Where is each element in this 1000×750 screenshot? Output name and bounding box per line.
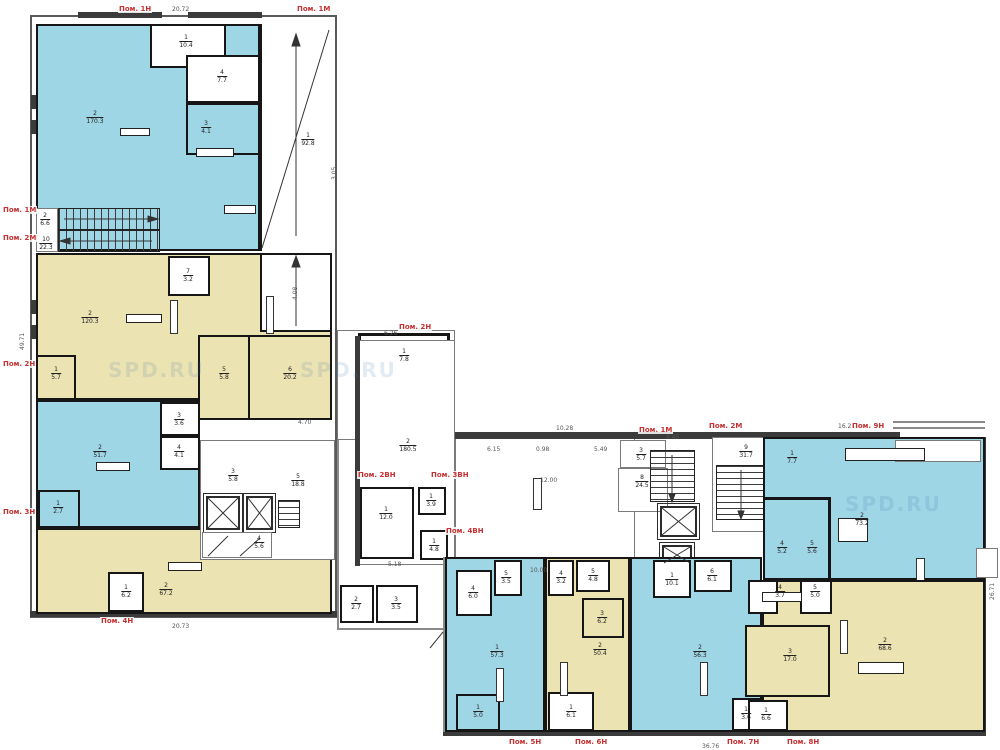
premise-label: Пом. 3Н [2, 508, 36, 516]
dimension-label: 20.72 [172, 7, 189, 13]
vent-slot [170, 300, 178, 334]
wall-line [337, 440, 339, 630]
room-label: 44.1 [174, 445, 184, 459]
watermark: SPD.RU [300, 358, 397, 382]
room-label: 22.7 [351, 597, 361, 611]
vent-slot [560, 662, 568, 696]
wall-niche [976, 548, 998, 578]
dimension-label: 5.49 [594, 447, 607, 453]
premise-label: Пом. 2М [2, 234, 37, 242]
room-label: 14.8 [429, 539, 439, 553]
premise-label: Пом. 1М [296, 5, 331, 13]
room-label: 157.3 [490, 645, 503, 659]
dimension-label: 36.76 [702, 744, 719, 750]
premise-label: Пом. 2Н [398, 323, 432, 331]
parapet-line [893, 421, 985, 423]
dimension-label: 5.18 [388, 562, 401, 568]
room-label: 16.1 [566, 705, 576, 719]
room-label: 112.0 [379, 507, 392, 521]
dimension-label: 6.15 [487, 447, 500, 453]
fixture-shelf [224, 205, 256, 214]
wall-line [337, 628, 443, 630]
room-label: 16.2 [121, 585, 131, 599]
dimension-label: 3.05 [332, 167, 338, 180]
fixture-shelf [96, 462, 130, 471]
premise-label: Пом. 1М [638, 426, 673, 434]
fixture-shelf [120, 128, 150, 136]
room-label: 13.6 [741, 707, 751, 721]
room-label: 33.6 [174, 413, 184, 427]
dimension-label: 49.71 [20, 333, 26, 350]
premise-label: Пом. 9Н [851, 422, 885, 430]
room-label: 45.2 [777, 541, 787, 555]
room-label: 824.5 [635, 475, 648, 489]
room-label: 35.7 [636, 448, 646, 462]
room-label: 47.7 [217, 70, 227, 84]
stairwell-right-2 [716, 465, 766, 520]
core-stair [278, 500, 300, 528]
premise-label: Пом. 8Н [786, 738, 820, 746]
room-label: 110.1 [665, 573, 678, 587]
fixture-shelf [168, 562, 202, 571]
room-label: 256.3 [693, 645, 706, 659]
room-label: 35.8 [228, 469, 238, 483]
room-label: 317.0 [783, 649, 796, 663]
fixture-counter [858, 662, 904, 674]
room-label: 192.8 [301, 133, 314, 147]
premise-label: Пом. 4ВН [445, 527, 485, 535]
room-label: 250.4 [593, 643, 606, 657]
room-label: 66.1 [707, 569, 717, 583]
elevator-shaft-1 [206, 496, 240, 530]
room-label: 55.6 [807, 541, 817, 555]
room-label: 54.8 [588, 569, 598, 583]
dimension-label: 4.08 [293, 287, 299, 300]
room-label: 12.7 [53, 501, 63, 515]
room-label: 55.8 [219, 367, 229, 381]
hall-main [455, 437, 635, 565]
room-label: 268.6 [878, 638, 891, 652]
dimension-label: 12.00 [540, 478, 557, 484]
watermark: SPD.RU [845, 492, 942, 516]
room-label: 110.4 [179, 35, 192, 49]
stairwell-left-lower [58, 230, 160, 252]
stairwell-right-1 [650, 450, 695, 502]
elevator-shaft-2 [246, 496, 273, 530]
room-label: 2120.3 [81, 311, 98, 325]
fixture-shelf [126, 314, 162, 323]
room-label: 73.2 [183, 269, 193, 283]
premise-label: Пом. 4Н [100, 617, 134, 625]
premise-label: Пом. 3ВН [430, 471, 470, 479]
room-label: 34.1 [201, 121, 211, 135]
premise-label: Пом. 7Н [726, 738, 760, 746]
room-label: 251.7 [93, 445, 106, 459]
room-label: 55.0 [810, 585, 820, 599]
dimension-label: 0.98 [536, 447, 549, 453]
outer-wall-segment [188, 12, 262, 18]
room-label: 518.8 [291, 474, 304, 488]
dimension-label: 9.45 [666, 435, 679, 441]
dimension-label: 4.70 [298, 420, 311, 426]
vent-slot [496, 668, 504, 702]
premise-label: Пом. 2М [708, 422, 743, 430]
premise-label: Пом. 5Н [508, 738, 542, 746]
room-label: 620.2 [283, 367, 296, 381]
room-label: 15.0 [473, 705, 483, 719]
dimension-label: 10.00 [530, 568, 547, 574]
room-label: 26.6 [40, 213, 50, 227]
subroom [360, 487, 414, 559]
premise-label: Пом. 1М [2, 206, 37, 214]
room-label: 931.7 [739, 445, 752, 459]
watermark: SPD.RU [108, 358, 205, 382]
room-label: 53.5 [501, 571, 511, 585]
room-label: 15.7 [51, 367, 61, 381]
room-label: 36.2 [597, 611, 607, 625]
partition [763, 497, 831, 500]
fixture-shelf [196, 148, 234, 157]
dimension-label: 6.26 [384, 331, 397, 337]
stairwell-left-upper [58, 208, 160, 230]
floor-plan-canvas: Пом. 1НПом. 1МПом. 1МПом. 2МПом. 2НПом. … [0, 0, 1000, 750]
room-label: 2180.5 [399, 439, 416, 453]
room-label: 1022.3 [39, 237, 52, 251]
elevator-shaft-3 [660, 506, 697, 537]
room-label: 13.9 [426, 494, 436, 508]
fixture-shelf [845, 448, 925, 461]
room-label: 17.7 [787, 451, 797, 465]
premise-label: Пом. 6Н [574, 738, 608, 746]
room-label: 43.2 [556, 571, 566, 585]
room-label: 16.6 [761, 708, 771, 722]
dimension-label: 20.73 [172, 624, 189, 630]
vent-slot [266, 296, 274, 334]
room-label: 33.5 [391, 597, 401, 611]
partition [828, 497, 831, 580]
dimension-label: 26.71 [990, 583, 996, 600]
room-label: 43.7 [775, 585, 785, 599]
vent-slot [840, 620, 848, 654]
room-label: 45.6 [254, 536, 264, 550]
ramp-area [260, 24, 332, 251]
room-label: 17.8 [399, 349, 409, 363]
premise-label: Пом. 2Н [2, 360, 36, 368]
premise-label: Пом. 1Н [118, 5, 152, 13]
room-label: 46.0 [468, 586, 478, 600]
room-label: 267.2 [159, 583, 172, 597]
premise-label: Пом. 2ВН [357, 471, 397, 479]
room-label: 2170.3 [86, 111, 103, 125]
dimension-label: 10.28 [556, 426, 573, 432]
parapet-line [893, 427, 985, 429]
vent-slot [700, 662, 708, 696]
